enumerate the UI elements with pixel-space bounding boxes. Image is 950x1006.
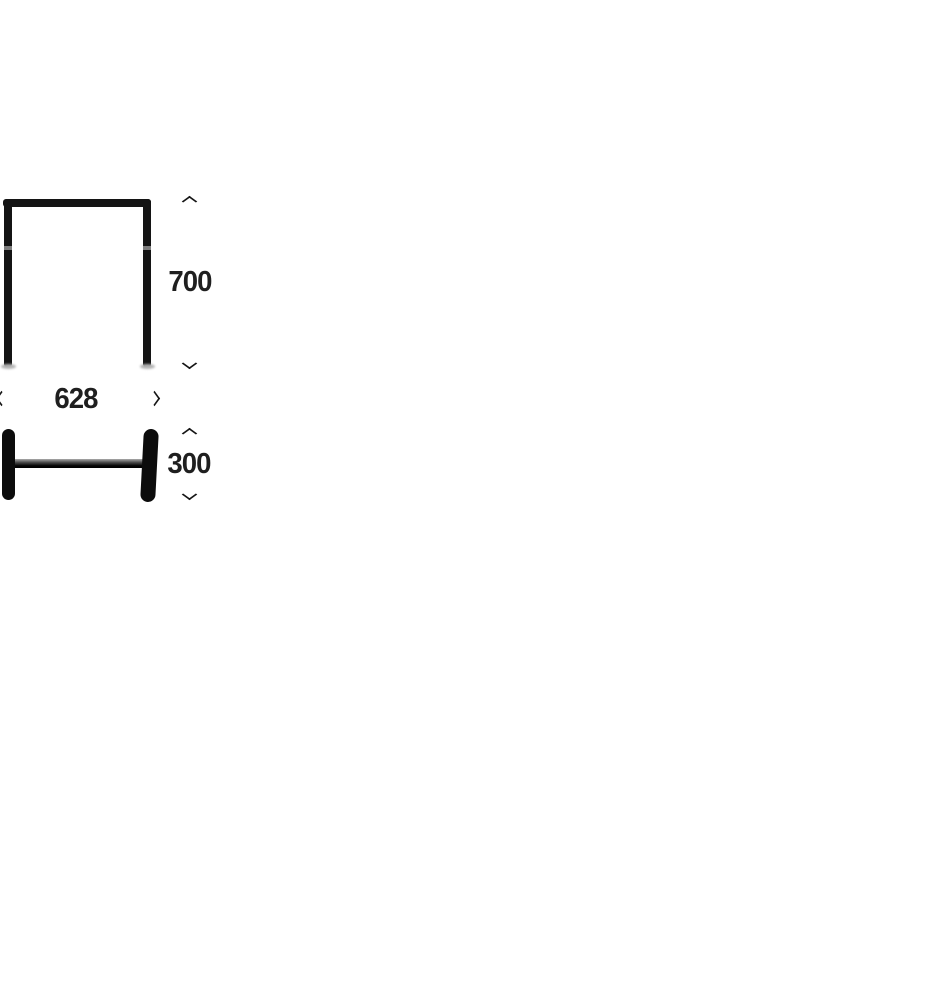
caret-up-icon xyxy=(182,428,198,439)
axle-bar xyxy=(4,459,156,468)
frame-top-tube xyxy=(3,199,151,207)
frame-right-tube xyxy=(143,199,151,367)
tube-end-left xyxy=(1,364,16,369)
caret-left-icon xyxy=(0,391,7,407)
dimension-wheel-height-label: 300 xyxy=(166,450,212,479)
frame-left-tube xyxy=(4,199,12,367)
caret-right-icon xyxy=(149,391,160,407)
diagram-canvas: 700 628 300 xyxy=(0,0,950,1006)
tube-joint-right xyxy=(143,246,151,250)
caret-down-icon xyxy=(182,358,198,369)
right-wheel xyxy=(140,429,159,503)
left-wheel xyxy=(2,429,15,500)
dimension-frame-width-label: 628 xyxy=(53,385,99,414)
tube-joint-left xyxy=(4,246,12,250)
tube-end-right xyxy=(140,364,155,369)
caret-up-icon xyxy=(182,196,198,207)
dimension-drawing: 700 628 300 xyxy=(0,0,950,1006)
caret-down-icon xyxy=(182,489,198,500)
dimension-frame-height-label: 700 xyxy=(167,268,213,297)
